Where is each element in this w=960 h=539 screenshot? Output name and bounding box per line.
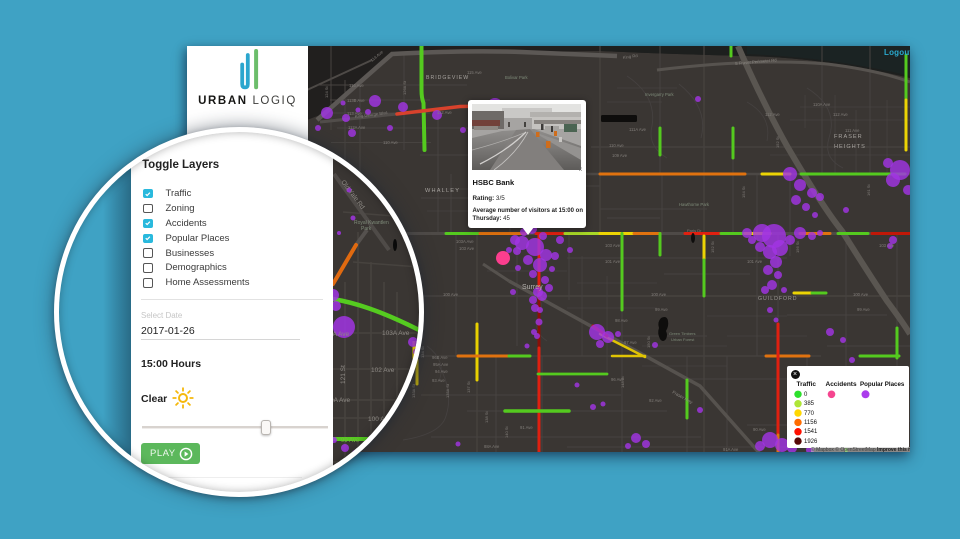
svg-text:150 St: 150 St [646, 336, 651, 348]
svg-text:126A St: 126A St [402, 80, 407, 95]
svg-text:92 Ave: 92 Ave [649, 398, 662, 403]
svg-text:112 Ave: 112 Ave [437, 110, 452, 115]
svg-text:124 St: 124 St [324, 86, 329, 98]
svg-text:112 Ave: 112 Ave [765, 112, 780, 117]
svg-text:111A Ave: 111A Ave [629, 127, 647, 132]
svg-text:99 Ave: 99 Ave [857, 307, 870, 312]
svg-text:King Rd: King Rd [622, 53, 638, 60]
svg-text:161 St: 161 St [866, 184, 871, 196]
svg-text:97 Ave: 97 Ave [624, 340, 637, 345]
svg-text:BRIDGEVIEW: BRIDGEVIEW [426, 75, 469, 81]
svg-text:113B Ave: 113B Ave [347, 98, 365, 103]
svg-text:90 Ave: 90 Ave [753, 427, 766, 432]
svg-text:100 Ave: 100 Ave [443, 292, 459, 297]
svg-text:Fraser Hwy: Fraser Hwy [672, 390, 695, 406]
svg-text:154 St: 154 St [741, 186, 746, 198]
svg-text:Paris Dr: Paris Dr [687, 228, 702, 233]
svg-text:FRASER: FRASER [834, 134, 863, 140]
svg-text:100 Ave: 100 Ave [651, 292, 667, 297]
svg-text:93 Ave: 93 Ave [432, 378, 445, 383]
svg-text:140 St: 140 St [504, 426, 509, 438]
svg-text:99 Ave: 99 Ave [655, 307, 668, 312]
svg-text:88A Ave: 88A Ave [484, 444, 500, 449]
svg-text:110A Ave: 110A Ave [813, 102, 831, 107]
svg-text:Bolivar Park: Bolivar Park [505, 75, 528, 80]
svg-text:96B Ave: 96B Ave [432, 355, 448, 360]
svg-text:Surrey: Surrey [522, 284, 543, 291]
svg-text:152 St: 152 St [710, 241, 715, 253]
svg-text:148 St: 148 St [620, 376, 625, 388]
svg-text:110 Ave: 110 Ave [609, 143, 624, 148]
svg-text:103 Ave: 103 Ave [879, 243, 895, 248]
svg-text:GUILDFORD: GUILDFORD [758, 296, 798, 302]
svg-text:103 Ave: 103 Ave [605, 243, 621, 248]
svg-text:100 Ave: 100 Ave [853, 292, 869, 297]
svg-text:156 St: 156 St [795, 241, 800, 253]
svg-text:Hawthorne Park: Hawthorne Park [679, 202, 710, 207]
svg-text:103A Ave: 103A Ave [456, 239, 474, 244]
svg-text:112A Ave: 112A Ave [348, 125, 366, 130]
svg-text:WHALLEY: WHALLEY [425, 188, 460, 194]
svg-text:135A St: 135A St [445, 383, 450, 398]
svg-text:Green Timbers: Green Timbers [669, 331, 695, 336]
svg-text:91A Ave: 91A Ave [723, 447, 739, 452]
svg-text:94 Ave: 94 Ave [435, 369, 448, 374]
svg-text:95A Ave: 95A Ave [433, 362, 449, 367]
svg-text:91 Ave: 91 Ave [520, 425, 533, 430]
svg-text:Invergarry Park: Invergarry Park [645, 92, 675, 97]
svg-text:111 Ave: 111 Ave [845, 128, 860, 133]
svg-text:HEIGHTS: HEIGHTS [834, 144, 866, 150]
svg-text:109 Ave: 109 Ave [612, 153, 628, 158]
svg-text:138 St: 138 St [484, 411, 489, 423]
svg-text:134 St: 134 St [420, 346, 425, 358]
svg-text:115 Ave: 115 Ave [467, 70, 482, 75]
svg-text:103 Ave: 103 Ave [459, 246, 475, 251]
svg-text:116 Ave: 116 Ave [349, 83, 364, 88]
svg-text:152 St: 152 St [775, 136, 780, 148]
svg-text:137 St: 137 St [466, 381, 471, 393]
svg-text:101 Ave: 101 Ave [605, 259, 621, 264]
svg-text:101 Ave: 101 Ave [747, 259, 763, 264]
svg-text:98 Ave: 98 Ave [615, 318, 628, 323]
svg-text:Urban Forest: Urban Forest [671, 337, 695, 342]
svg-text:112 Ave: 112 Ave [833, 112, 848, 117]
